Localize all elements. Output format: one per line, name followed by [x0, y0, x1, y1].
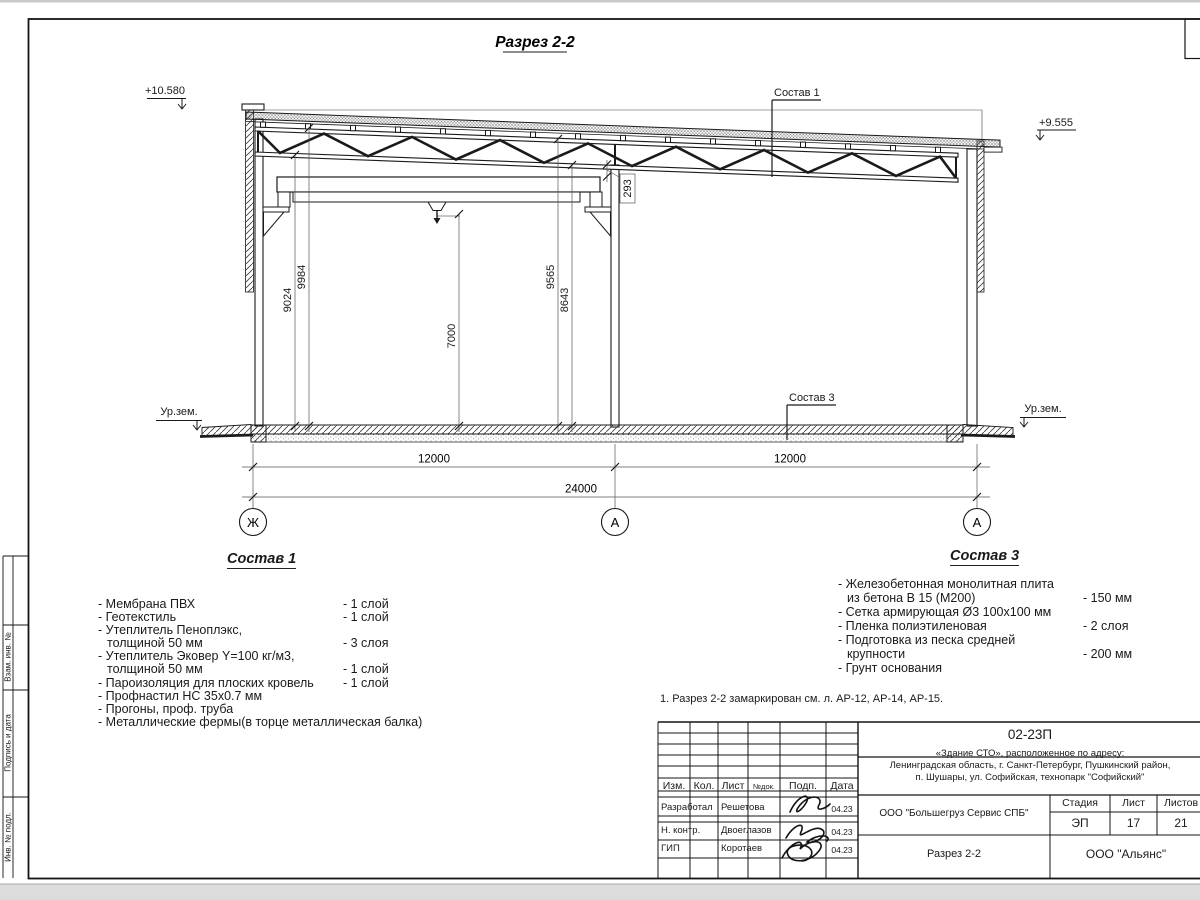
ground-level-left: Ур.зем.	[160, 406, 197, 418]
dim-9984: 9984	[296, 265, 308, 289]
margin-stamp-inv: Инв. № подл.	[4, 812, 13, 862]
margin-stamp-podpis: Подпись и дата	[4, 714, 13, 772]
bracket-plate-left	[263, 207, 289, 212]
col-header-ndok: №док.	[748, 782, 780, 791]
vertical-dim-labels: 9024 9984 7000 9565 8643 293	[282, 179, 634, 348]
list-item: - Утеплитель Эковер Y=100 кг/м3,	[98, 649, 438, 662]
sheets-value: 21	[1157, 816, 1200, 830]
list-item: - Пароизоляция для плоских кровель- 1 сл…	[98, 676, 438, 689]
crane-beam	[263, 177, 611, 236]
elevation-left: +10.580	[145, 85, 185, 97]
dim-bay-right: 12000	[774, 454, 806, 466]
crane-trolley	[428, 202, 446, 211]
role-gip: ГИП	[661, 843, 680, 854]
object-address-line2: Ленинградская область, г. Санкт-Петербур…	[858, 760, 1200, 771]
axis-letter-right: А	[973, 515, 982, 530]
elevation-right: +9.555	[1039, 117, 1073, 129]
dim-9565: 9565	[545, 265, 557, 289]
axis-letter-left: Ж	[247, 515, 259, 530]
list-item: - Грунт основания	[838, 661, 1168, 675]
bracket-gusset-right	[590, 212, 611, 236]
list-item: - Утеплитель Пеноплэкс,	[98, 623, 438, 636]
sheet-value: 17	[1110, 816, 1157, 830]
list-item: из бетона В 15 (М200)- 150 мм	[838, 591, 1168, 605]
sheet-label: Лист	[1110, 797, 1157, 809]
list-item: крупности- 200 мм	[838, 647, 1168, 661]
col-header-list: Лист	[718, 780, 748, 792]
drawing-sheet: 9024 9984 7000 9565 8643 293 12000 12000…	[0, 0, 1200, 900]
date-row1: 04.23	[826, 804, 858, 814]
name-korotaev: Коротаев	[721, 843, 762, 854]
bracket-gusset-left	[264, 212, 285, 236]
ground-level-right: Ур.зем.	[1024, 403, 1061, 415]
leader-sostav3-label: Состав 3	[789, 392, 835, 404]
vertical-dimensions	[291, 124, 635, 432]
stage-label: Стадия	[1050, 797, 1110, 809]
object-address-line3: п. Шушары, ул. Софийская, технопарк "Соф…	[858, 772, 1200, 783]
sostav3-list: - Железобетонная монолитная плита из бет…	[838, 577, 1168, 675]
date-row2: 04.23	[826, 827, 858, 837]
page-edge-bottom	[0, 884, 1200, 900]
leader-sostav1-label: Состав 1	[774, 87, 820, 99]
dim-total: 24000	[565, 484, 597, 496]
name-dvoeglazov: Двоеглазов	[721, 825, 772, 836]
parapet-cap	[242, 104, 264, 110]
list-item: - Пленка полиэтиленовая- 2 слоя	[838, 619, 1168, 633]
list-item: - Профнастил НС 35х0.7 мм	[98, 689, 438, 702]
sheet-note: 1. Разрез 2-2 замаркирован см. л. АР-12,…	[660, 693, 943, 705]
corner-stamp-box	[1185, 19, 1200, 59]
sostav1-list: - Мембрана ПВХ- 1 слой - Геотекстиль- 1 …	[98, 597, 438, 728]
dim-7000: 7000	[446, 324, 458, 348]
list-item: - Подготовка из песка средней	[838, 633, 1168, 647]
dim-293: 293	[622, 179, 634, 197]
ground-slab	[200, 425, 1015, 443]
wall-panel-right	[977, 141, 984, 292]
col-header-kol: Кол.	[690, 780, 718, 792]
section-title: Разрез 2-2	[495, 34, 575, 51]
dim-bay-left: 12000	[418, 454, 450, 466]
role-razrabotal: Разработал	[661, 802, 713, 813]
grid-axes: Ж А А	[240, 509, 991, 536]
roof-edge-fascia	[984, 147, 1002, 152]
list-item: толщиной 50 мм- 1 слой	[98, 662, 438, 675]
list-item: - Геотекстиль- 1 слой	[98, 610, 438, 623]
margin-stamp-vzam: Взам. инв. №	[4, 632, 13, 682]
col-header-podp: Подп.	[780, 780, 826, 792]
column-middle	[611, 165, 619, 427]
list-item: - Мембрана ПВХ- 1 слой	[98, 597, 438, 610]
document-name: Разрез 2-2	[858, 848, 1050, 860]
sostav1-heading: Состав 1	[227, 551, 296, 569]
column-left	[255, 119, 263, 426]
list-item: - Металлические фермы(в торце металличес…	[98, 715, 438, 728]
view-title: Разрез 2-2	[495, 34, 575, 52]
dim-8643: 8643	[559, 288, 571, 312]
sheets-label: Листов	[1157, 797, 1200, 809]
page-edge-top	[0, 0, 1200, 3]
role-nkontr: Н. контр.	[661, 825, 700, 836]
name-reshetova: Решетова	[721, 802, 765, 813]
company-name: ООО "Альянс"	[1050, 847, 1200, 861]
dim-ticks	[291, 124, 576, 430]
sostav3-heading: Состав 3	[950, 548, 1019, 566]
column-right	[967, 149, 977, 426]
date-row3: 04.23	[826, 845, 858, 855]
col-header-izm: Изм.	[658, 780, 690, 792]
signatures	[782, 796, 830, 861]
list-item: - Прогоны, проф. труба	[98, 702, 438, 715]
list-item: толщиной 50 мм- 3 слоя	[98, 636, 438, 649]
object-address-line1: «Здание СТО», расположенное по адресу:	[858, 748, 1200, 759]
crane-girder	[293, 192, 580, 202]
stage-value: ЭП	[1050, 816, 1110, 830]
axis-letter-mid: А	[611, 515, 620, 530]
slab-concrete-band	[251, 425, 963, 434]
dim-9024: 9024	[282, 288, 294, 312]
bracket-plate-right	[585, 207, 611, 212]
signature-row1	[790, 796, 830, 812]
horizontal-dimensions: 12000 12000 24000	[242, 444, 990, 508]
contractor-org: ООО "Большегруз Сервис СПБ"	[858, 808, 1050, 819]
list-item: - Железобетонная монолитная плита	[838, 577, 1168, 591]
slab-sand-band	[251, 434, 963, 442]
project-code: 02-23П	[858, 727, 1200, 742]
crane-runway-beam	[277, 177, 600, 192]
wall-panel-left	[246, 110, 254, 292]
list-item: - Сетка армирующая Ø3 100х100 мм	[838, 605, 1168, 619]
col-header-data: Дата	[826, 780, 858, 792]
